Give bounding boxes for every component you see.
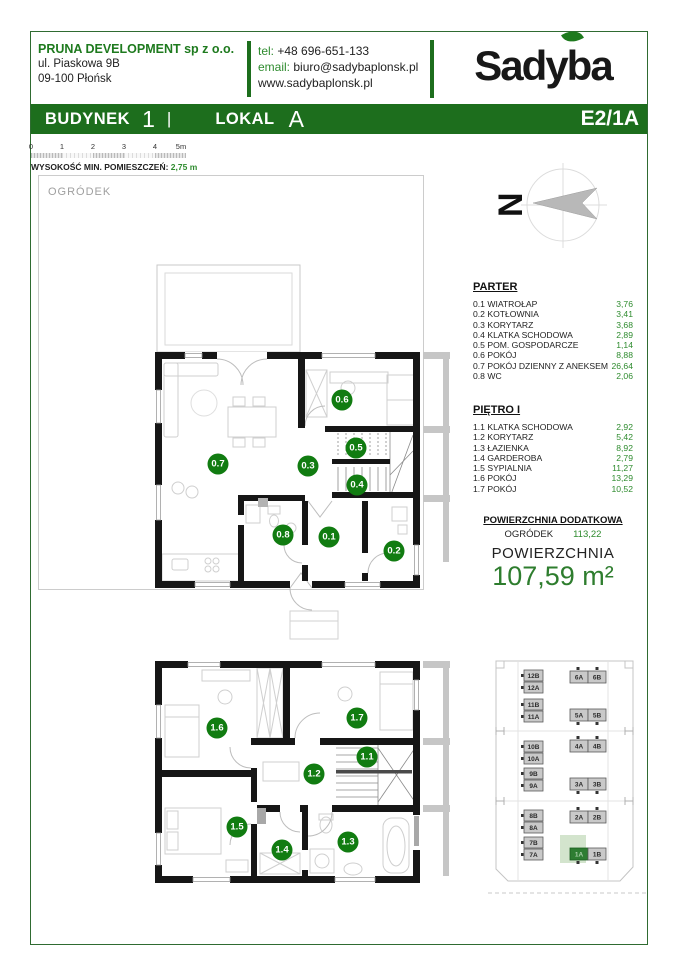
parter-title: PARTER xyxy=(473,281,633,293)
additional-area-line: OGRÓDEK 113,22 xyxy=(473,529,633,540)
svg-text:7A: 7A xyxy=(529,852,538,859)
site-section-markers xyxy=(496,727,633,805)
neighbor-unit-walls xyxy=(423,352,450,562)
ground-floor-interior xyxy=(155,352,420,588)
room-badge-1-1: 1.1 xyxy=(357,747,378,768)
site-right-units xyxy=(570,671,606,860)
scale-bar xyxy=(31,153,186,158)
svg-text:12A: 12A xyxy=(528,685,540,692)
room-badge-0-5: 0.5 xyxy=(346,438,367,459)
room-row: 0.1 WIATROŁAP3,76 xyxy=(473,299,633,309)
email-label: email: xyxy=(258,60,290,74)
total-area-label: POWIERZCHNIA xyxy=(473,545,633,562)
room-row: 1.3 ŁAZIENKA8,92 xyxy=(473,443,633,453)
room-badge-0-3: 0.3 xyxy=(298,456,319,477)
svg-text:5A: 5A xyxy=(575,713,584,720)
scale-tick-3: 3 xyxy=(122,142,126,151)
scale-tick-0: 0 xyxy=(29,142,33,151)
room-row: 0.8 WC2,06 xyxy=(473,371,633,381)
svg-text:8A: 8A xyxy=(529,825,538,832)
additional-area-name: OGRÓDEK xyxy=(505,529,554,540)
svg-text:6A: 6A xyxy=(575,675,584,682)
room-badge-0-2: 0.2 xyxy=(384,541,405,562)
room-row: 1.6 POKÓJ13,29 xyxy=(473,473,633,483)
email-value: biuro@sadybaplonsk.pl xyxy=(293,60,418,74)
room-badge-1-3: 1.3 xyxy=(338,832,359,853)
building-value: 1 xyxy=(142,106,155,133)
svg-text:1A: 1A xyxy=(575,852,584,859)
room-badge-0-7: 0.7 xyxy=(208,454,229,475)
ceiling-height-label: WYSOKOŚĆ MIN. POMIESZCZEŃ: xyxy=(31,162,168,172)
ground-floor-plan xyxy=(140,255,450,655)
phone-label: tel: xyxy=(258,44,274,58)
room-row: 1.1 KLATKA SCHODOWA2,92 xyxy=(473,422,633,432)
room-row: 0.5 POM. GOSPODARCZE1,14 xyxy=(473,340,633,350)
company-name: PRUNA DEVELOPMENT sp z o.o. xyxy=(38,42,234,56)
svg-text:11B: 11B xyxy=(528,702,540,709)
ceiling-height-note: WYSOKOŚĆ MIN. POMIESZCZEŃ: 2,75 m xyxy=(31,162,197,172)
svg-text:9A: 9A xyxy=(529,783,538,790)
room-row: 1.2 KORYTARZ5,42 xyxy=(473,432,633,442)
unit-label: LOKAL xyxy=(215,110,274,129)
room-row: 0.2 KOTŁOWNIA3,41 xyxy=(473,309,633,319)
brand-logo: Sadyba xyxy=(440,42,646,90)
first-floor-plan xyxy=(140,650,450,905)
svg-text:1B: 1B xyxy=(593,852,602,859)
phone-line: tel: +48 696-651-133 xyxy=(258,43,418,59)
website-line: www.sadybaplonsk.pl xyxy=(258,75,418,91)
company-address-line1: ul. Piaskowa 9B xyxy=(38,58,120,70)
svg-text:5B: 5B xyxy=(593,713,602,720)
compass-north-letter: N xyxy=(497,192,530,217)
additional-area-value: 113,22 xyxy=(573,529,601,540)
site-key-map: 12B 12A 11B 11A 10B 10A 9B 9A 8B 8A 7B 7… xyxy=(488,655,648,900)
entry-porch xyxy=(290,611,338,639)
room-badge-1-5: 1.5 xyxy=(227,817,248,838)
garden-label: OGRÓDEK xyxy=(48,186,111,198)
svg-text:4A: 4A xyxy=(575,744,584,751)
room-badge-1-4: 1.4 xyxy=(272,840,293,861)
room-badge-1-6: 1.6 xyxy=(207,718,228,739)
floor-plan-sheet: PRUNA DEVELOPMENT sp z o.o. ul. Piaskowa… xyxy=(0,0,679,960)
room-badge-1-7: 1.7 xyxy=(347,708,368,729)
svg-text:6B: 6B xyxy=(593,675,602,682)
total-area-value: 107,59 m² xyxy=(473,561,633,592)
svg-text:10B: 10B xyxy=(528,744,540,751)
room-badge-0-1: 0.1 xyxy=(319,527,340,548)
svg-text:3B: 3B xyxy=(593,782,602,789)
room-badge-0-8: 0.8 xyxy=(273,525,294,546)
compass-needle xyxy=(533,188,597,219)
header-divider-1 xyxy=(247,41,251,97)
svg-text:7B: 7B xyxy=(529,840,538,847)
svg-text:9B: 9B xyxy=(529,771,538,778)
scale-tick-2: 2 xyxy=(91,142,95,151)
room-badge-0-4: 0.4 xyxy=(347,475,368,496)
title-bar-pipe: | xyxy=(167,109,171,129)
svg-text:3A: 3A xyxy=(575,782,584,789)
company-address-line2: 09-100 Płońsk xyxy=(38,73,112,85)
pietro-room-list: PIĘTRO I 1.1 KLATKA SCHODOWA2,92 1.2 KOR… xyxy=(473,404,633,494)
site-right-entry-ticks xyxy=(577,667,599,864)
svg-text:2A: 2A xyxy=(575,815,584,822)
header-divider-2 xyxy=(430,40,434,98)
svg-text:2B: 2B xyxy=(593,815,602,822)
parter-room-list: PARTER 0.1 WIATROŁAP3,76 0.2 KOTŁOWNIA3,… xyxy=(473,281,633,381)
phone-value: +48 696-651-133 xyxy=(277,44,369,58)
room-badge-1-2: 1.2 xyxy=(304,764,325,785)
room-row: 0.3 KORYTARZ3,68 xyxy=(473,320,633,330)
svg-text:10A: 10A xyxy=(528,756,540,763)
room-badge-0-6: 0.6 xyxy=(332,390,353,411)
unit-value: A xyxy=(289,106,304,133)
neighbor-unit-walls-first xyxy=(423,661,450,876)
compass: N xyxy=(497,158,617,253)
room-row: 1.4 GARDEROBA2,79 xyxy=(473,453,633,463)
svg-text:12B: 12B xyxy=(528,673,540,680)
contact-block: tel: +48 696-651-133 email: biuro@sadyba… xyxy=(258,43,418,91)
svg-text:8B: 8B xyxy=(529,813,538,820)
scale-tick-5: 5m xyxy=(176,142,186,151)
room-row: 0.4 KLATKA SCHODOWA2,89 xyxy=(473,330,633,340)
unit-code: E2/1A xyxy=(581,107,639,131)
room-row: 0.6 POKÓJ8,88 xyxy=(473,350,633,360)
scale-tick-4: 4 xyxy=(153,142,157,151)
title-bar: BUDYNEK 1 | LOKAL A E2/1A xyxy=(31,104,647,134)
building-label: BUDYNEK xyxy=(45,110,130,129)
ceiling-height-value: 2,75 m xyxy=(171,162,197,172)
room-row: 1.5 SYPIALNIA11,27 xyxy=(473,463,633,473)
svg-text:4B: 4B xyxy=(593,744,602,751)
room-row: 0.7 POKÓJ DZIENNY Z ANEKSEM26,64 xyxy=(473,361,633,371)
scale-tick-1: 1 xyxy=(60,142,64,151)
svg-text:11A: 11A xyxy=(528,714,540,721)
terrace xyxy=(157,265,300,352)
site-left-entry-ticks xyxy=(521,674,524,856)
pietro-title: PIĘTRO I xyxy=(473,404,633,416)
room-row: 1.7 POKÓJ10,52 xyxy=(473,484,633,494)
email-line: email: biuro@sadybaplonsk.pl xyxy=(258,59,418,75)
ground-door-jambs xyxy=(258,498,268,507)
additional-area-title: POWIERZCHNIA DODATKOWA xyxy=(473,515,633,526)
